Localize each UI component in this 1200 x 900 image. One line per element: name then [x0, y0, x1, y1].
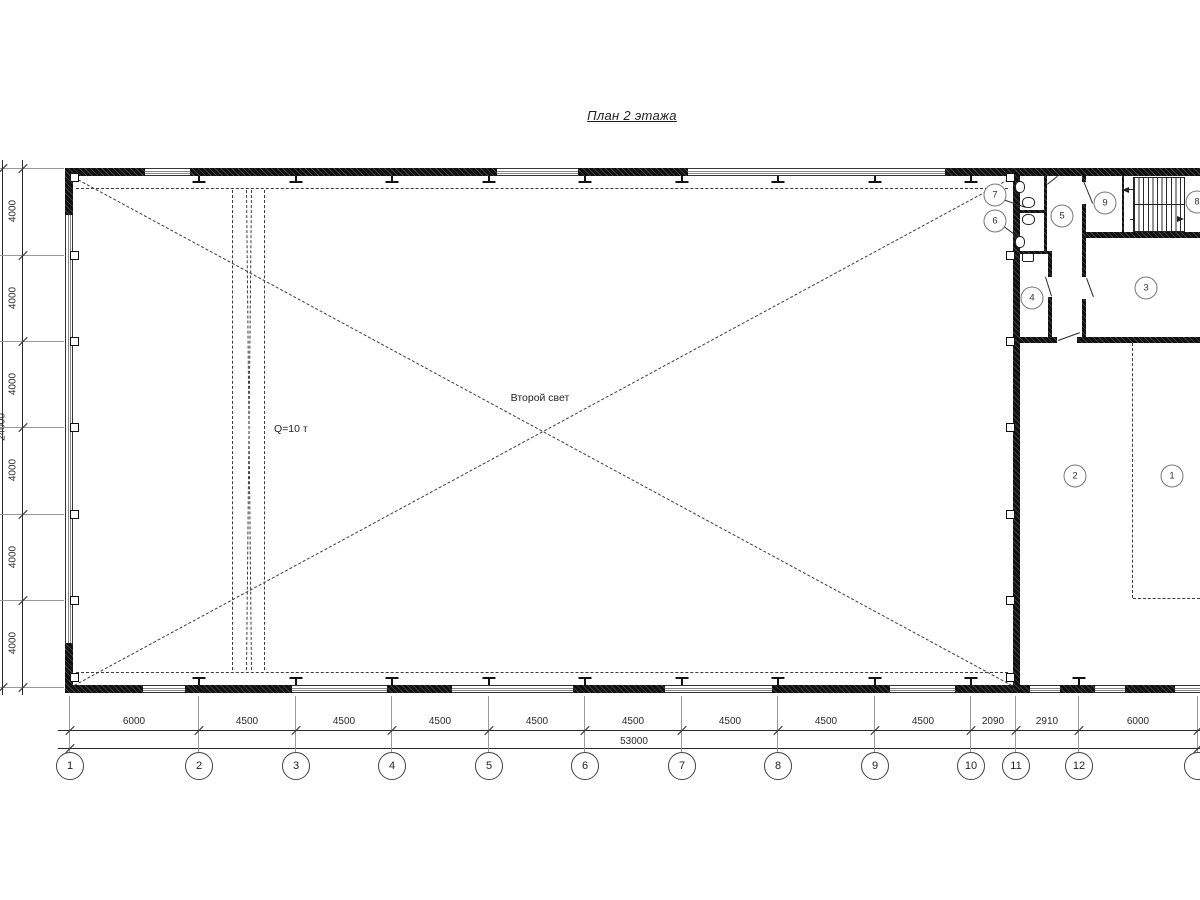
column-marker — [70, 510, 79, 519]
stair-arrow-icon — [1177, 216, 1184, 222]
dim-text: 4000 — [8, 632, 19, 654]
window — [292, 685, 387, 693]
extension-line — [1197, 696, 1198, 753]
top-wall — [65, 168, 1200, 176]
extension-line — [0, 341, 64, 342]
room-tag: 9 — [1094, 192, 1117, 215]
window — [688, 168, 945, 176]
column-mark — [772, 181, 785, 183]
wc-fixture — [1022, 214, 1035, 225]
extension-line — [488, 696, 489, 753]
column-mark — [681, 679, 683, 685]
axis-bubble: 9 — [861, 752, 889, 780]
column-marker — [1006, 673, 1015, 682]
dim-text: 2090 — [982, 716, 1004, 727]
axis-bubble: 5 — [475, 752, 503, 780]
column-marker — [70, 673, 79, 682]
column-mark — [391, 679, 393, 685]
axis-bubble — [1184, 752, 1200, 780]
room-tag: 6 — [984, 210, 1007, 233]
door-leaf — [1045, 277, 1052, 296]
column-mark — [777, 679, 779, 685]
window — [665, 685, 772, 693]
room-tag: 4 — [1021, 287, 1044, 310]
extension-line — [584, 696, 585, 753]
extension-line — [0, 687, 64, 688]
column-marker — [70, 423, 79, 432]
floor-plan-canvas: План 2 этажа Второй свет Q=10 т 53000 24… — [0, 0, 1200, 900]
column-mark — [579, 181, 592, 183]
wc-fixture — [1015, 236, 1025, 248]
extension-line — [874, 696, 875, 753]
column-marker — [1006, 251, 1015, 260]
dim-text: 4500 — [236, 716, 258, 727]
column-mark — [1078, 679, 1080, 685]
column-mark — [584, 679, 586, 685]
axis-bubble: 7 — [668, 752, 696, 780]
dim-text: 2910 — [1036, 716, 1058, 727]
extension-line — [0, 168, 64, 169]
dim-text: 4000 — [8, 200, 19, 222]
dim-text: 6000 — [123, 716, 145, 727]
extension-line — [1015, 696, 1016, 753]
room-divider-dashed — [1132, 343, 1133, 598]
window — [1095, 685, 1125, 693]
column-marker — [70, 337, 79, 346]
stair-left-wall — [1122, 176, 1124, 232]
window — [145, 168, 190, 176]
window — [497, 168, 578, 176]
crane-rail — [232, 190, 233, 670]
axis-bubble: 11 — [1002, 752, 1030, 780]
column-mark — [965, 181, 978, 183]
dim-text: 4000 — [8, 287, 19, 309]
opening-outline-bottom — [76, 672, 1008, 673]
left-wall-bottom — [65, 643, 73, 693]
window — [1030, 685, 1060, 693]
column-marker — [70, 596, 79, 605]
room3-bottom-wall — [1020, 337, 1057, 343]
dim-text: 4000 — [8, 373, 19, 395]
room-tag: 8 — [1186, 191, 1200, 214]
corridor-wall — [1082, 299, 1086, 342]
crane-rail — [264, 190, 265, 670]
sink-fixture — [1022, 253, 1034, 262]
extension-line — [777, 696, 778, 753]
room-tag: 3 — [1135, 277, 1158, 300]
column-marker — [1006, 510, 1015, 519]
extension-line — [681, 696, 682, 753]
window — [452, 685, 573, 693]
dim-text: 4500 — [912, 716, 934, 727]
toilet-partition — [1044, 176, 1047, 254]
extension-line — [69, 696, 70, 753]
total-dimension-bottom: 53000 — [620, 736, 648, 747]
door-leaf — [1086, 278, 1094, 297]
dim-text: 4500 — [815, 716, 837, 727]
extension-line — [0, 514, 64, 515]
dim-text: 4500 — [333, 716, 355, 727]
axis-bubble: 4 — [378, 752, 406, 780]
window — [890, 685, 955, 693]
dim-rail — [58, 730, 1200, 731]
crane-capacity-label: Q=10 т — [274, 423, 308, 435]
page-title: План 2 этажа — [587, 108, 677, 123]
room-tag: 5 — [1051, 205, 1074, 228]
column-marker — [1006, 173, 1015, 182]
room-tag: 7 — [984, 184, 1007, 207]
extension-line — [295, 696, 296, 753]
column-marker — [70, 251, 79, 260]
stall-partition — [1020, 210, 1044, 213]
column-mark — [483, 181, 496, 183]
opening-outline-top — [76, 188, 1008, 189]
column-marker — [1006, 337, 1015, 346]
extension-line — [0, 255, 64, 256]
column-mark — [386, 181, 399, 183]
column-marker — [1006, 423, 1015, 432]
dim-text: 4500 — [429, 716, 451, 727]
room4-right-wall — [1048, 251, 1052, 277]
dim-text: 4500 — [622, 716, 644, 727]
column-mark — [198, 679, 200, 685]
dim-text: 4500 — [526, 716, 548, 727]
stair-arrow-icon — [1122, 187, 1129, 193]
column-mark — [488, 679, 490, 685]
axis-bubble: 1 — [56, 752, 84, 780]
column-mark — [676, 181, 689, 183]
room4-right-wall — [1048, 297, 1052, 342]
window — [143, 685, 185, 693]
column-mark — [295, 679, 297, 685]
room-divider-dashed — [1133, 598, 1200, 599]
column-mark — [970, 679, 972, 685]
column-mark — [869, 181, 882, 183]
axis-bubble: 8 — [764, 752, 792, 780]
room-tag: 2 — [1064, 465, 1087, 488]
axis-bubble: 3 — [282, 752, 310, 780]
axis-bubble: 10 — [957, 752, 985, 780]
extension-line — [0, 427, 64, 428]
column-marker — [1006, 596, 1015, 605]
extension-line — [1078, 696, 1079, 753]
wc-fixture — [1022, 197, 1035, 208]
dim-text: 4500 — [719, 716, 741, 727]
dim-rail — [58, 748, 1200, 749]
understair-wall — [1086, 232, 1200, 238]
wc-fixture — [1015, 181, 1025, 193]
axis-bubble: 2 — [185, 752, 213, 780]
stair-flight — [1133, 177, 1185, 205]
extension-line — [970, 696, 971, 753]
corridor-wall — [1082, 204, 1086, 277]
dim-text: 4000 — [8, 459, 19, 481]
column-mark — [290, 181, 303, 183]
second-light-label: Второй свет — [511, 392, 570, 404]
door-leaf — [1047, 176, 1058, 185]
window — [1175, 685, 1200, 693]
room-tag: 1 — [1161, 465, 1184, 488]
column-mark — [874, 679, 876, 685]
dim-text: 6000 — [1127, 716, 1149, 727]
extension-line — [0, 600, 64, 601]
axis-bubble: 6 — [571, 752, 599, 780]
dim-text: 4000 — [8, 546, 19, 568]
extension-line — [391, 696, 392, 753]
column-marker — [70, 173, 79, 182]
extension-line — [198, 696, 199, 753]
door-leaf — [1083, 181, 1093, 203]
column-mark — [193, 181, 206, 183]
axis-bubble: 12 — [1065, 752, 1093, 780]
room3-bottom-wall — [1077, 337, 1200, 343]
